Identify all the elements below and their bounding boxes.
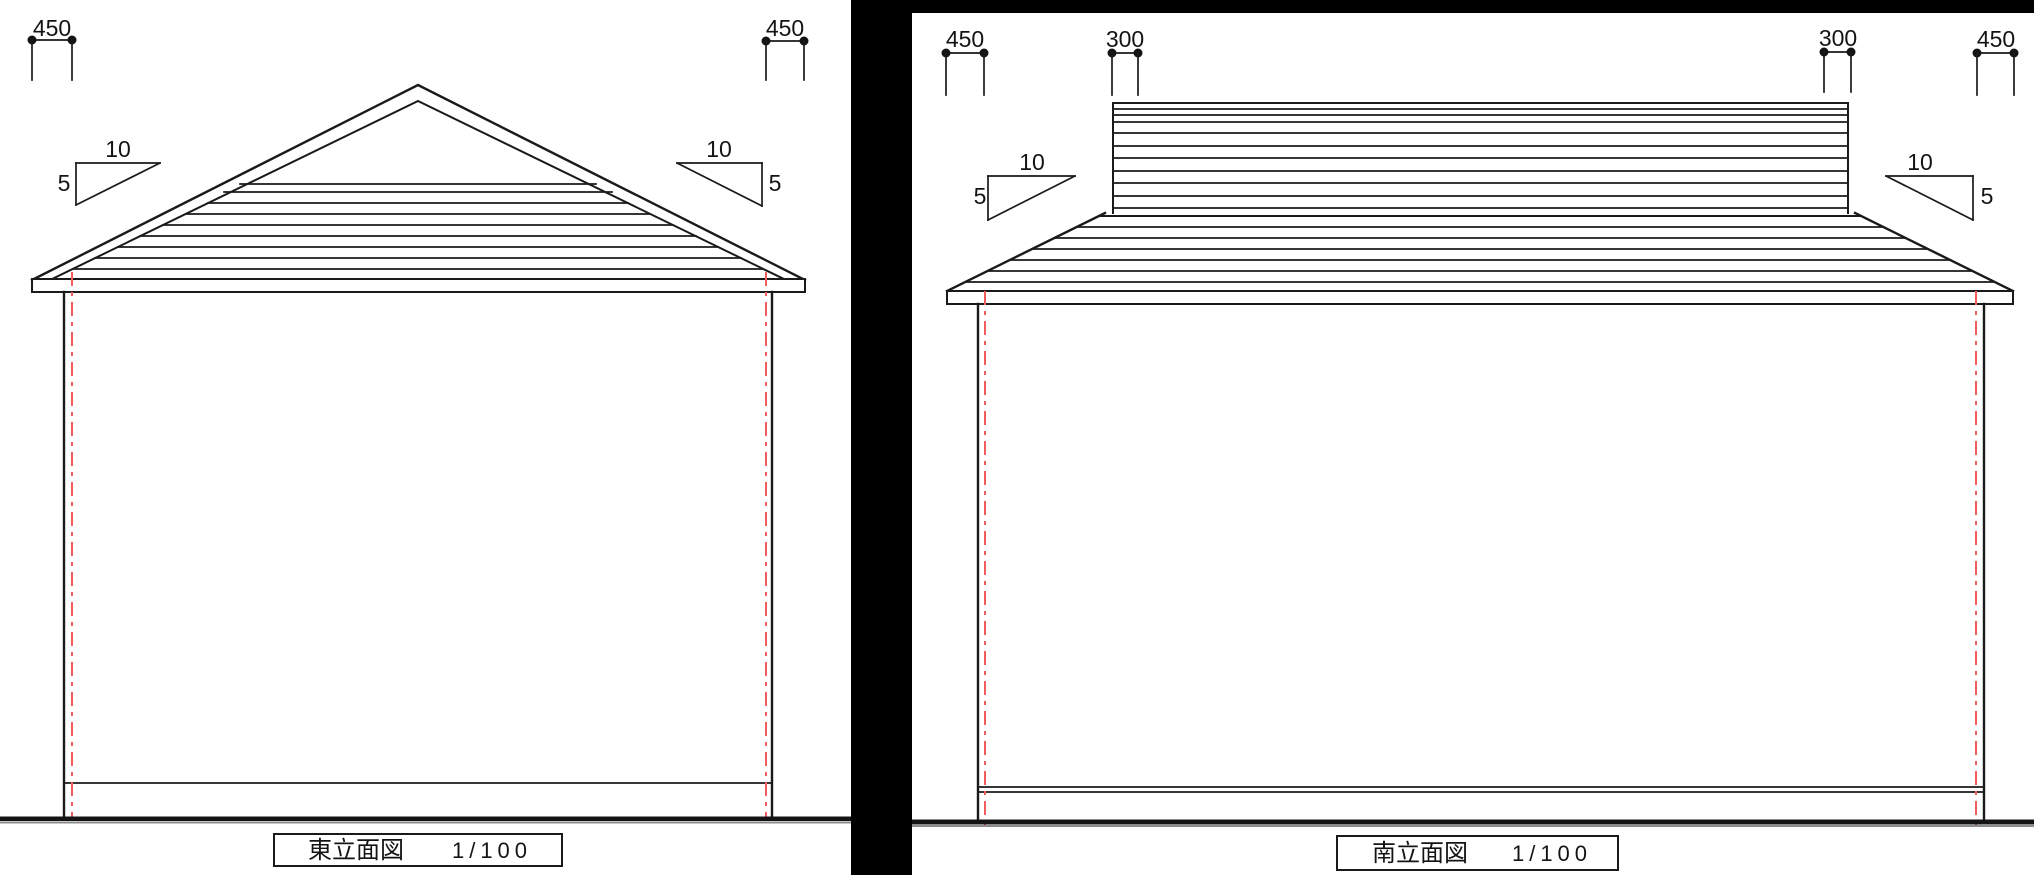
slope-rise-label: 5 [769, 170, 782, 196]
south-ground-line [912, 820, 2034, 828]
south-scale-label: 1/100 [1512, 841, 1592, 866]
drawing-sheet: 450 450 10 5 10 5 [0, 0, 2034, 875]
slope-run-label: 10 [1907, 149, 1933, 175]
slope-rise-label: 5 [58, 170, 71, 196]
eaves-fascia [32, 279, 805, 292]
dimension-value: 300 [1106, 26, 1144, 52]
east-title: 東立面図 [308, 837, 404, 864]
slope-rise-label: 5 [1981, 183, 1994, 209]
south-panel-top-border [912, 0, 2034, 13]
slope-run-label: 10 [706, 136, 732, 162]
slope-run-label: 10 [1019, 149, 1045, 175]
slope-run-label: 10 [105, 136, 131, 162]
slope-rise-label: 5 [974, 183, 987, 209]
dimension-value: 450 [766, 15, 804, 41]
dimension-value: 300 [1819, 25, 1857, 51]
eaves-fascia [947, 291, 2013, 304]
east-ground-line [0, 817, 851, 824]
sheet-background [0, 0, 2034, 875]
south-title-box: 南立面図 1/100 [1337, 836, 1618, 870]
panel-divider-bar [851, 0, 912, 875]
east-title-box: 東立面図 1/100 [274, 834, 562, 866]
dimension-value: 450 [1977, 26, 2015, 52]
south-title: 南立面図 [1372, 840, 1468, 867]
dimension-value: 450 [33, 15, 71, 41]
east-scale-label: 1/100 [452, 838, 532, 863]
dimension-value: 450 [946, 26, 984, 52]
